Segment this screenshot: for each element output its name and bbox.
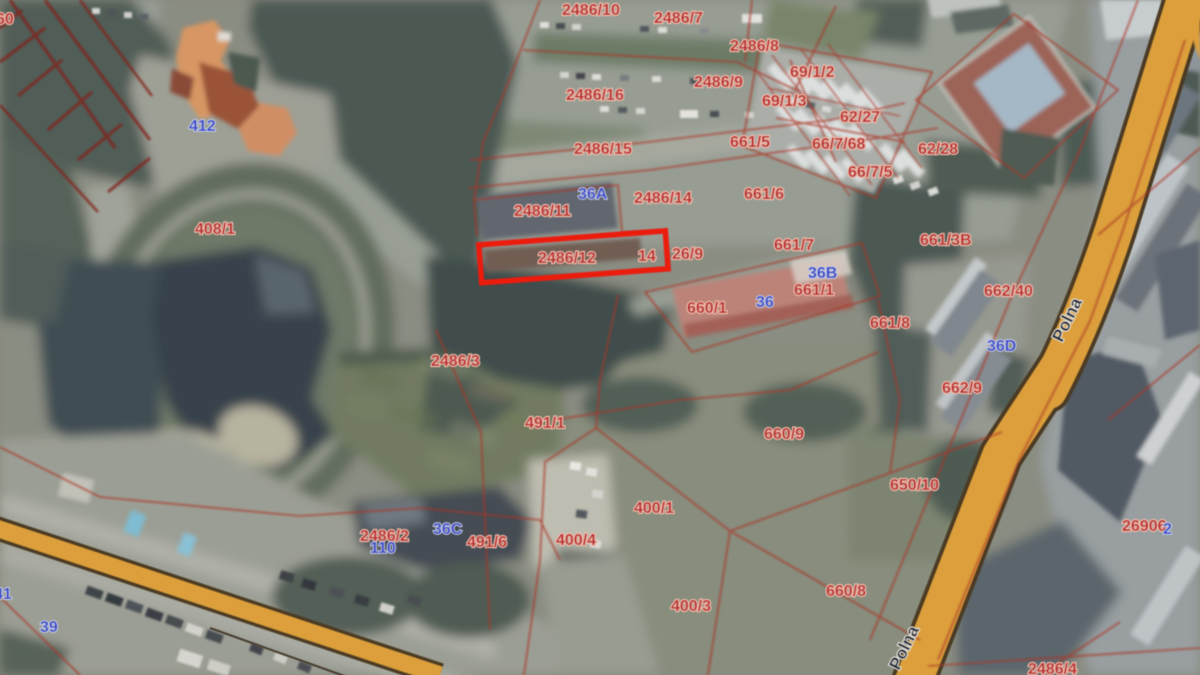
svg-text:662/9: 662/9	[942, 380, 982, 397]
svg-text:36B: 36B	[808, 265, 837, 282]
svg-text:661/7: 661/7	[774, 237, 814, 254]
svg-text:661/8: 661/8	[870, 315, 910, 332]
svg-text:661/3B: 661/3B	[920, 232, 972, 249]
svg-text:660/9: 660/9	[764, 426, 804, 443]
svg-text:400/4: 400/4	[556, 532, 596, 549]
svg-text:66/7/68: 66/7/68	[812, 136, 865, 153]
svg-text:2486/9: 2486/9	[694, 74, 743, 91]
svg-text:41: 41	[0, 586, 12, 603]
svg-text:2486/10: 2486/10	[562, 2, 620, 19]
svg-text:36D: 36D	[987, 338, 1016, 355]
svg-text:2486/4: 2486/4	[1028, 661, 1077, 675]
svg-text:36C: 36C	[433, 521, 463, 538]
svg-text:26906: 26906	[1122, 518, 1167, 535]
svg-text:69/1/3: 69/1/3	[762, 93, 807, 110]
svg-text:36: 36	[756, 294, 774, 311]
svg-text:491/1: 491/1	[525, 415, 565, 432]
svg-text:2: 2	[1163, 521, 1172, 538]
svg-text:2486/8: 2486/8	[730, 38, 779, 55]
svg-text:491/6: 491/6	[467, 534, 507, 551]
svg-text:60: 60	[0, 11, 14, 28]
svg-text:2486/11: 2486/11	[514, 203, 571, 220]
svg-text:412: 412	[189, 118, 216, 135]
svg-text:660/8: 660/8	[826, 583, 866, 600]
svg-text:110: 110	[370, 540, 396, 557]
svg-text:36A: 36A	[578, 186, 608, 203]
svg-text:2486/14: 2486/14	[634, 190, 692, 207]
svg-text:62/27: 62/27	[840, 109, 880, 126]
svg-text:2486/12: 2486/12	[538, 250, 596, 267]
svg-text:14: 14	[638, 248, 656, 265]
svg-text:661/6: 661/6	[744, 186, 784, 203]
svg-text:66/7/5: 66/7/5	[848, 164, 893, 181]
svg-text:662/40: 662/40	[984, 283, 1033, 300]
svg-text:660/1: 660/1	[687, 300, 727, 317]
svg-text:400/3: 400/3	[671, 598, 711, 615]
svg-text:650/10: 650/10	[890, 477, 939, 494]
svg-text:408/1: 408/1	[195, 221, 235, 238]
svg-text:400/1: 400/1	[634, 500, 674, 517]
svg-text:2486/3: 2486/3	[431, 353, 480, 370]
svg-text:661/5: 661/5	[730, 134, 770, 151]
svg-text:2486/16: 2486/16	[566, 87, 624, 104]
svg-text:2486/7: 2486/7	[654, 10, 703, 27]
svg-text:661/1: 661/1	[794, 282, 834, 299]
svg-text:69/1/2: 69/1/2	[790, 64, 835, 81]
svg-text:26/9: 26/9	[672, 246, 703, 263]
svg-text:39: 39	[40, 619, 58, 636]
svg-text:2486/15: 2486/15	[574, 141, 632, 158]
svg-text:62/28: 62/28	[918, 141, 958, 158]
